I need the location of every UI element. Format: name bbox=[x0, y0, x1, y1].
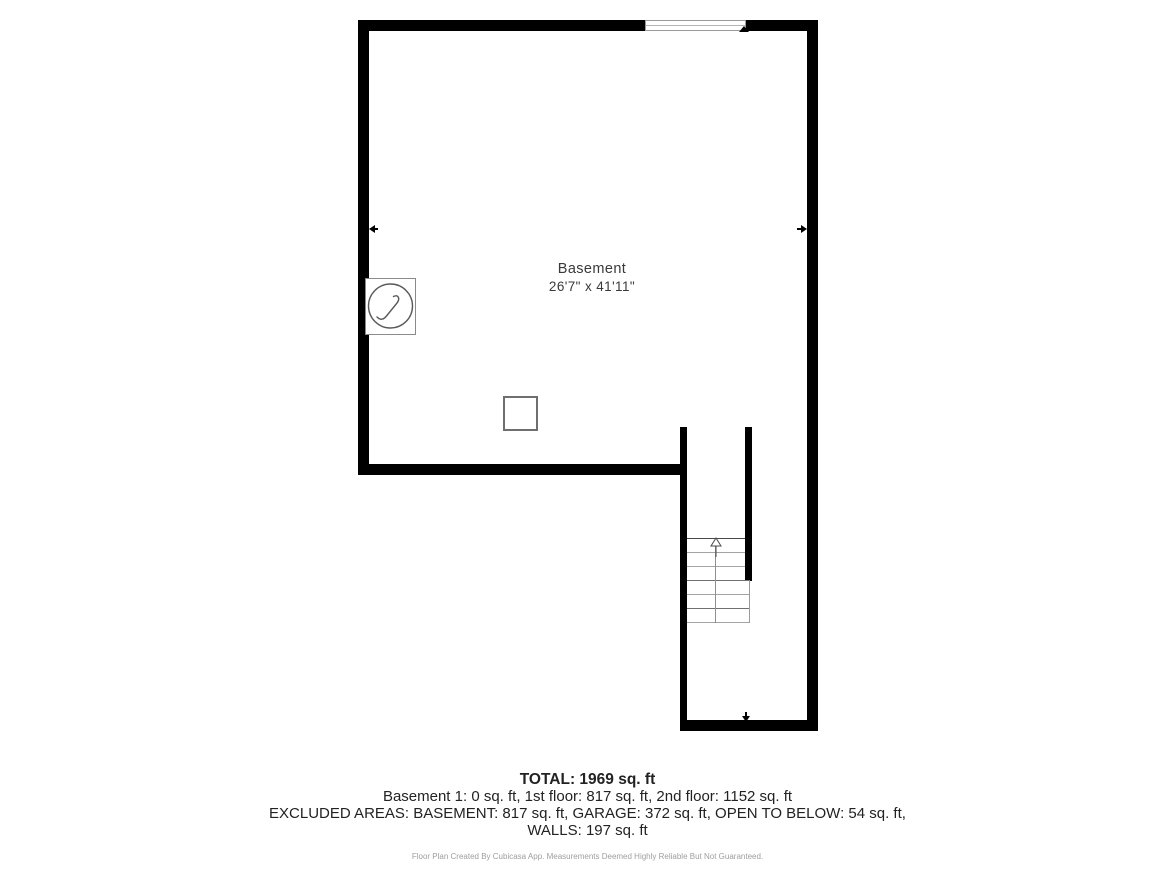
wall-stairwell-left bbox=[680, 427, 687, 731]
stair-lower-right-edge bbox=[749, 580, 750, 623]
total-area-text: TOTAL: 1969 sq. ft bbox=[0, 771, 1175, 788]
window-glass-line bbox=[646, 25, 745, 26]
room-dimensions: 26'7" x 41'11" bbox=[492, 278, 692, 296]
wall-stairwell-right bbox=[745, 427, 752, 581]
floor-plan-canvas: Basement 26'7" x 41'11" TOTAL: 1969 sq. … bbox=[0, 0, 1175, 881]
stair-tread-line bbox=[687, 622, 750, 623]
stair-tread-line bbox=[687, 608, 750, 609]
excluded-areas-text: EXCLUDED AREAS: BASEMENT: 817 sq. ft, GA… bbox=[0, 805, 1175, 822]
walls-area-text: WALLS: 197 sq. ft bbox=[0, 822, 1175, 839]
right-dimension-arrow-icon bbox=[801, 225, 807, 233]
wall-left bbox=[358, 20, 369, 475]
electrical-panel-icon bbox=[365, 278, 416, 335]
stair-tread-line bbox=[687, 594, 750, 595]
stair-tread-line bbox=[687, 566, 745, 567]
area-summary: TOTAL: 1969 sq. ft Basement 1: 0 sq. ft,… bbox=[0, 771, 1175, 839]
bottom-dimension-arrow-icon bbox=[742, 716, 750, 722]
wall-bottom-main-room bbox=[358, 464, 687, 475]
window-dimension-arrow-icon bbox=[739, 26, 749, 32]
wall-top-left-segment bbox=[358, 20, 645, 31]
window bbox=[645, 20, 746, 31]
disclaimer-text: Floor Plan Created By Cubicasa App. Meas… bbox=[0, 852, 1175, 862]
room-label: Basement 26'7" x 41'11" bbox=[492, 260, 692, 296]
floor-breakdown-text: Basement 1: 0 sq. ft, 1st floor: 817 sq.… bbox=[0, 788, 1175, 805]
support-post bbox=[503, 396, 538, 431]
stairs-up-arrow-icon bbox=[706, 534, 726, 560]
stair-tread-line bbox=[687, 580, 750, 581]
left-dimension-arrow-stem bbox=[374, 228, 378, 230]
right-dimension-arrow-stem bbox=[797, 228, 801, 230]
room-name: Basement bbox=[492, 260, 692, 278]
wall-right bbox=[807, 20, 818, 731]
